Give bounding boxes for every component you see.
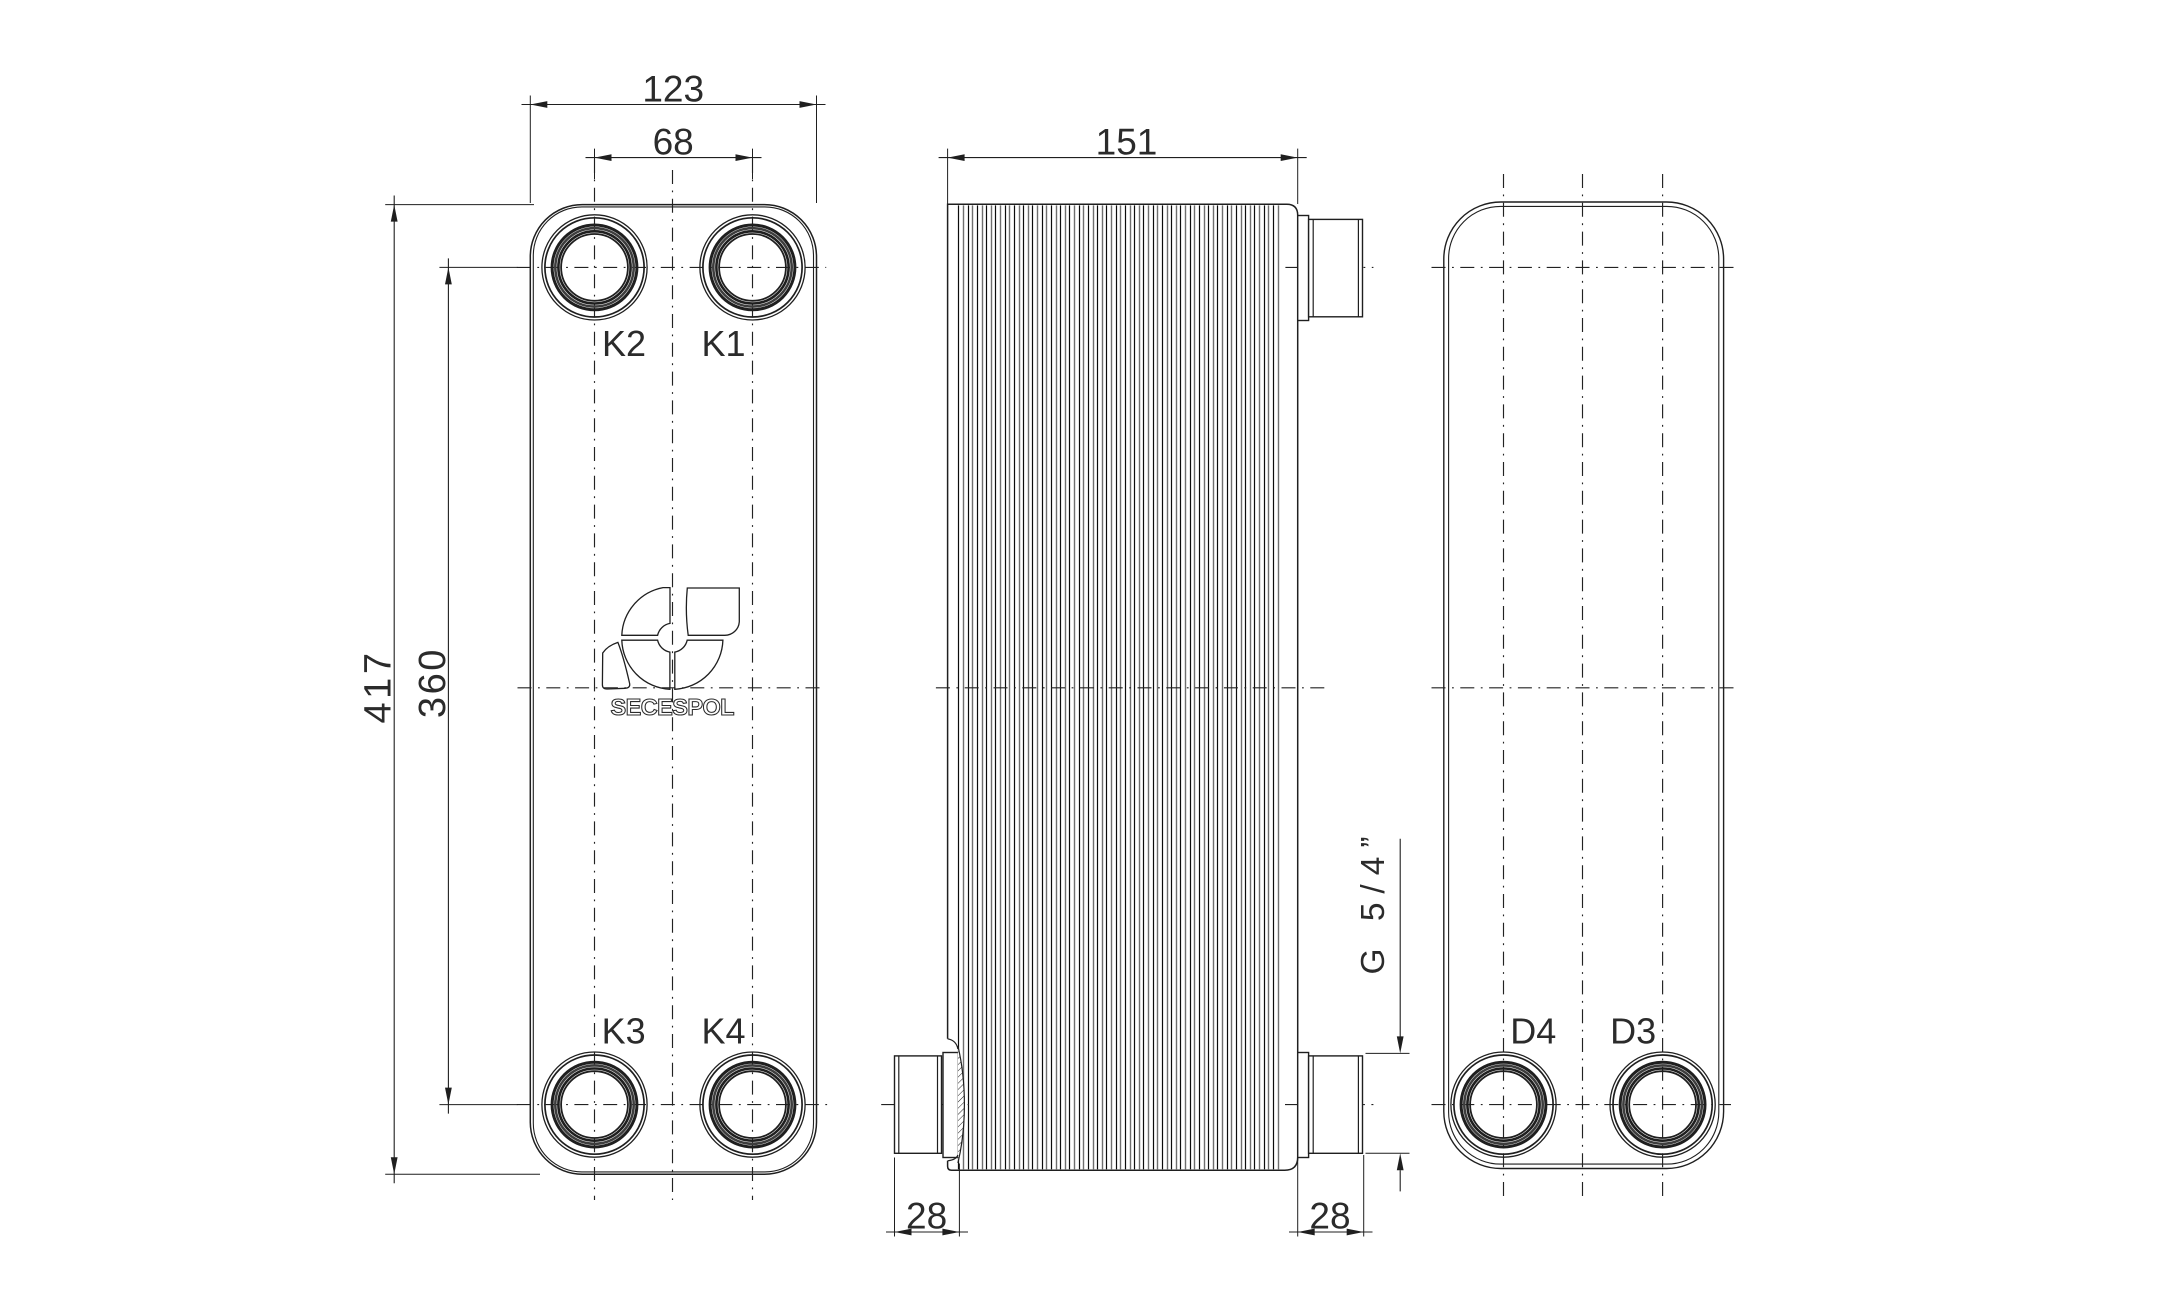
svg-text:417: 417 xyxy=(358,652,400,724)
svg-text:G 5/4”: G 5/4” xyxy=(1355,836,1392,975)
svg-text:K2: K2 xyxy=(602,323,646,364)
svg-text:D4: D4 xyxy=(1510,1011,1556,1052)
svg-text:K3: K3 xyxy=(602,1011,646,1052)
svg-text:K1: K1 xyxy=(701,323,745,364)
svg-text:D3: D3 xyxy=(1610,1011,1656,1052)
svg-text:151: 151 xyxy=(1096,122,1158,163)
svg-text:123: 123 xyxy=(642,69,704,110)
svg-text:68: 68 xyxy=(653,122,694,163)
svg-text:28: 28 xyxy=(1309,1196,1350,1237)
svg-text:SECESPOL: SECESPOL xyxy=(611,694,735,720)
svg-text:28: 28 xyxy=(906,1196,947,1237)
svg-text:360: 360 xyxy=(412,648,454,718)
svg-text:K4: K4 xyxy=(701,1011,745,1052)
